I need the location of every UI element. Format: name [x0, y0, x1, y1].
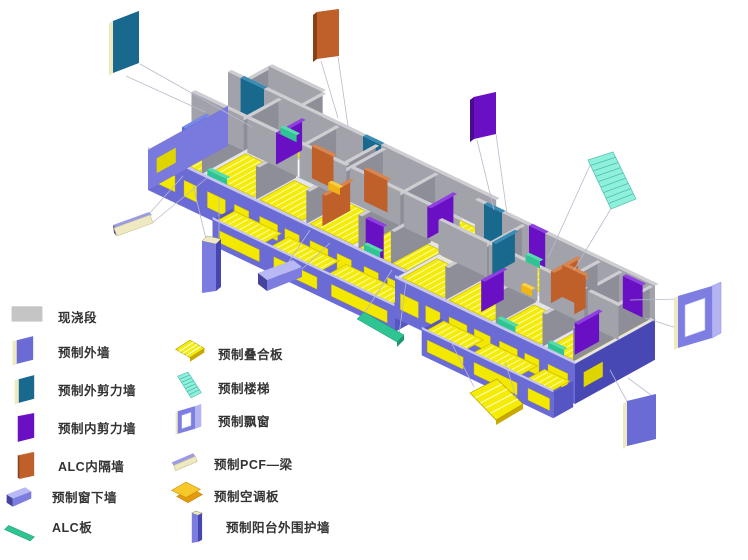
stairs-flight: [588, 152, 636, 209]
window-hole: [685, 298, 705, 337]
cast-segment-icon: [8, 298, 46, 335]
shape: [195, 404, 201, 429]
alc-panel-icon: [2, 508, 40, 545]
leader-line: [628, 378, 655, 398]
leader-line: [338, 57, 348, 126]
panel-side: [623, 401, 627, 449]
panel-side: [109, 21, 113, 76]
shape: [198, 513, 202, 542]
legend-label: 预制PCF—梁: [214, 454, 293, 473]
legend-label: 预制阳台外围护墙: [226, 517, 330, 536]
shape: [13, 340, 17, 366]
ext-wall-icon: [8, 333, 46, 370]
callout-ext-shear-wall: [109, 11, 139, 76]
legend-item-composite-slab: 预制叠合板: [172, 335, 283, 372]
panel-face: [317, 9, 339, 59]
ext-shear-wall-icon: [8, 371, 46, 408]
legend-label: ALC板: [52, 517, 92, 536]
callout-balcony-wall: [202, 236, 221, 293]
composite-slab-glyph: [176, 340, 205, 362]
callout-stairs: [588, 152, 636, 209]
diagram-canvas: 现浇段预制外墙预制外剪力墙预制内剪力墙ALC内隔墙预制窗下墙ALC板预制叠合板预…: [0, 0, 748, 560]
shape: [182, 412, 191, 428]
bay-window-icon: [172, 402, 210, 439]
stairs-glyph: [178, 372, 202, 398]
window-side: [712, 282, 721, 338]
legend-label: 预制飘窗: [218, 411, 270, 430]
alc-partition-glyph: [18, 452, 34, 479]
callout-int-shear-wall: [470, 92, 496, 142]
ext-shear-wall-glyph: [15, 375, 35, 405]
panel-side: [470, 97, 474, 142]
panel-face: [627, 394, 656, 446]
legend-label: 预制楼梯: [218, 378, 270, 397]
leader-line: [496, 134, 507, 214]
shape: [192, 513, 198, 543]
panel-side: [313, 12, 317, 62]
legend-item-alc-panel: ALC板: [2, 508, 92, 545]
callout-pcf-beam: [113, 212, 153, 236]
ext-wall-glyph: [13, 336, 34, 366]
panel-face: [113, 11, 139, 73]
legend-item-ext-shear-wall: 预制外剪力墙: [8, 371, 136, 408]
legend-label: 预制窗下墙: [52, 487, 117, 506]
legend-item-bay-window: 预制飘窗: [172, 402, 270, 439]
legend-item-ext-wall: 预制外墙: [8, 333, 110, 370]
int-shear-wall-icon: [8, 409, 46, 446]
shape: [18, 413, 34, 442]
panel-face: [474, 92, 496, 139]
window-edge: [674, 296, 678, 350]
shape: [5, 525, 35, 540]
callout-ext-wall: [623, 394, 656, 449]
aircon-slab-glyph: [172, 482, 203, 503]
column-face: [202, 241, 216, 293]
shape: [19, 375, 34, 403]
cast-segment-glyph: [12, 306, 43, 321]
legend-label: 预制空调板: [214, 486, 279, 505]
column-side: [216, 239, 221, 291]
legend-label: 预制叠合板: [218, 344, 283, 363]
shape: [18, 455, 20, 479]
balcony-wall-icon: [180, 508, 218, 545]
under-window-wall-glyph: [7, 487, 32, 507]
stairs-icon: [172, 369, 210, 406]
legend-label: 预制内剪力墙: [58, 418, 136, 437]
legend-label: 预制外剪力墙: [58, 380, 136, 399]
shape: [17, 336, 33, 364]
legend-label: 预制外墙: [58, 342, 110, 361]
callout-alc-partition: [313, 9, 339, 62]
alc-panel-glyph: [5, 525, 35, 540]
cast-segment-icon: [12, 306, 43, 321]
legend-item-int-shear-wall: 预制内剪力墙: [8, 409, 136, 446]
shape: [178, 372, 202, 398]
legend-item-balcony-wall: 预制阳台外围护墙: [180, 508, 330, 545]
legend-item-stairs: 预制楼梯: [172, 369, 270, 406]
balcony-wall-glyph: [192, 511, 202, 543]
shape: [20, 452, 34, 479]
bay-window-glyph: [176, 404, 202, 435]
legend-label: 现浇段: [58, 307, 97, 326]
composite-slab-icon: [172, 335, 210, 372]
callout-bay-window: [674, 282, 721, 350]
shape: [176, 411, 178, 435]
shape: [15, 379, 19, 405]
legend-item-cast-segment: 现浇段: [8, 298, 97, 335]
pcf-beam-glyph: [172, 453, 198, 470]
int-shear-wall-glyph: [17, 413, 34, 442]
legend-label: ALC内隔墙: [58, 456, 124, 475]
